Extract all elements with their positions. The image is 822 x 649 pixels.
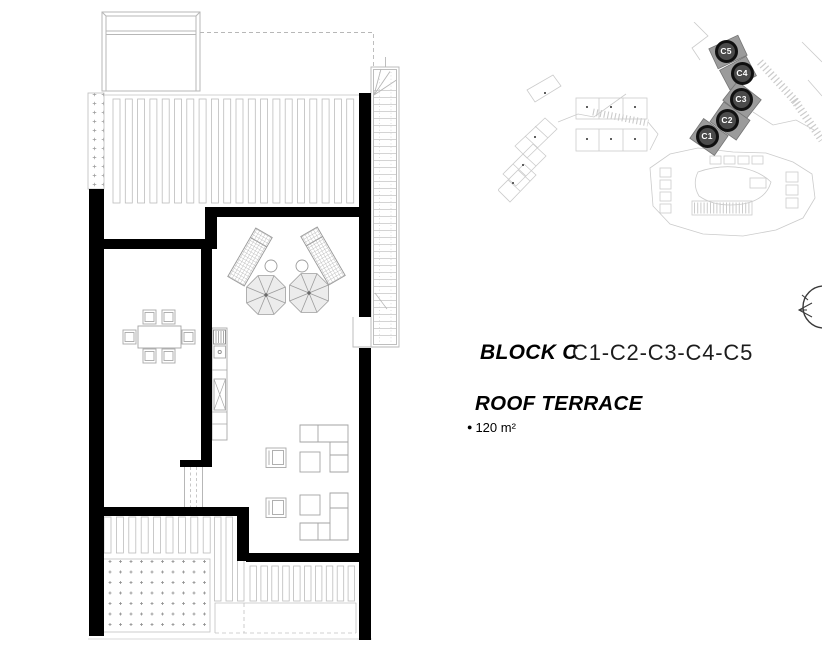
unit-badge-label: C3 (735, 94, 746, 104)
unit-badge-c4: C4 (731, 62, 754, 85)
site-outlines (498, 22, 822, 236)
roof-edge-dashed (200, 33, 374, 67)
unit-list-label: C1-C2-C3-C4-C5 (572, 340, 753, 366)
bullet-icon: ● (467, 423, 472, 432)
side-tables (265, 260, 308, 272)
area-value: 120 m² (475, 420, 515, 435)
block-title: BLOCK C (480, 341, 578, 365)
dining-set (123, 310, 195, 363)
unit-badge-label: C5 (720, 46, 731, 56)
sun-loungers (228, 227, 345, 286)
room-title: ROOF TERRACE (475, 392, 643, 416)
north-arrow-icon (792, 283, 822, 331)
kitchen-unit (212, 328, 227, 440)
parasols (247, 274, 329, 315)
unit-badge-label: C2 (721, 115, 732, 125)
floor-plan-drawing (0, 0, 410, 649)
unit-badge-label: C4 (736, 68, 747, 78)
planter-strip (88, 93, 104, 189)
unit-badge-label: C1 (701, 131, 712, 141)
parapet-structure (102, 12, 200, 91)
area-row: ● 120 m² (467, 420, 516, 435)
pergola-slats-bottom-left (104, 517, 210, 553)
pergola-slats-bottom-right (250, 566, 355, 601)
unit-badge-c3: C3 (730, 88, 753, 111)
unit-badge-c1: C1 (696, 125, 719, 148)
unit-badge-c2: C2 (716, 109, 739, 132)
gravel-bed (103, 559, 210, 632)
page: C1 C2 C3 C4 C5 BLOCK C C1-C2-C3-C4-C5 RO… (0, 0, 822, 649)
unit-badge-c5: C5 (715, 40, 738, 63)
planter-band (215, 603, 356, 633)
lounge-seating (266, 425, 348, 540)
pergola-slats-top (104, 95, 359, 203)
shaft-ladder (185, 467, 203, 511)
site-plan-drawing (498, 22, 822, 240)
